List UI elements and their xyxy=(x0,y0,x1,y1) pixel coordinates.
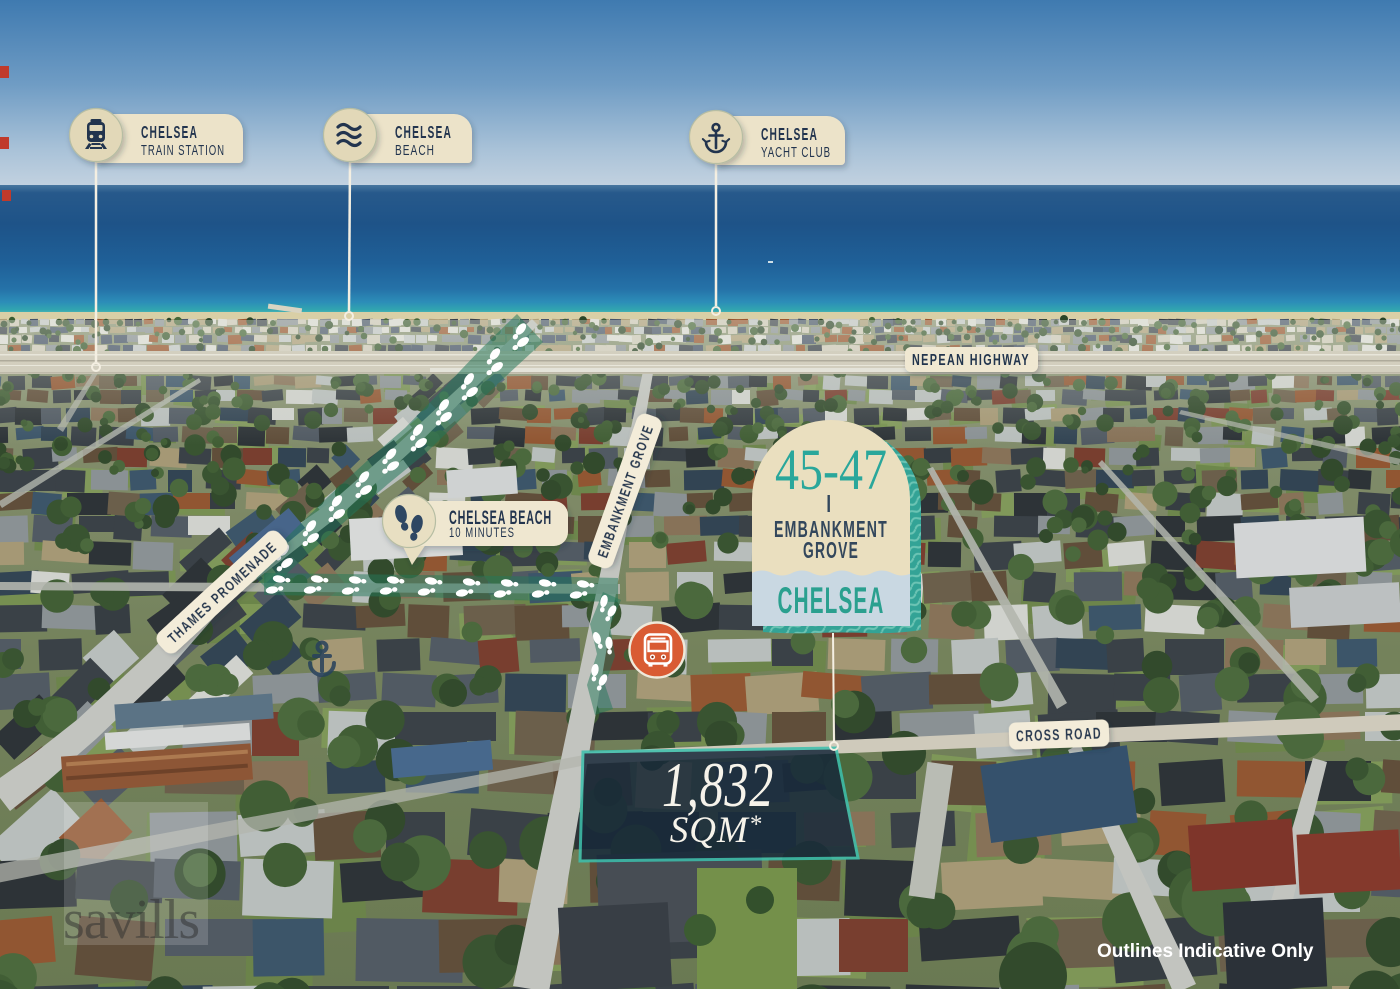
svg-text:45-47: 45-47 xyxy=(775,437,887,502)
svg-text:NEPEAN HIGHWAY: NEPEAN HIGHWAY xyxy=(912,352,1030,369)
svg-text:SQM*: SQM* xyxy=(670,810,763,851)
svg-text:YACHT CLUB: YACHT CLUB xyxy=(761,144,831,161)
svg-text:CROSS ROAD: CROSS ROAD xyxy=(1016,726,1103,746)
svg-text:savills: savills xyxy=(63,889,199,951)
svg-text:TRAIN STATION: TRAIN STATION xyxy=(141,142,225,159)
svg-text:CHELSEA: CHELSEA xyxy=(778,580,885,621)
svg-text:Outlines Indicative Only: Outlines Indicative Only xyxy=(1097,941,1314,962)
svg-text:GROVE: GROVE xyxy=(803,537,859,563)
svg-text:CHELSEA: CHELSEA xyxy=(761,124,818,144)
svg-text:CHELSEA: CHELSEA xyxy=(141,122,198,142)
svg-text:10 MINUTES: 10 MINUTES xyxy=(449,524,515,540)
svg-text:BEACH: BEACH xyxy=(395,142,435,159)
svg-text:CHELSEA: CHELSEA xyxy=(395,122,452,142)
